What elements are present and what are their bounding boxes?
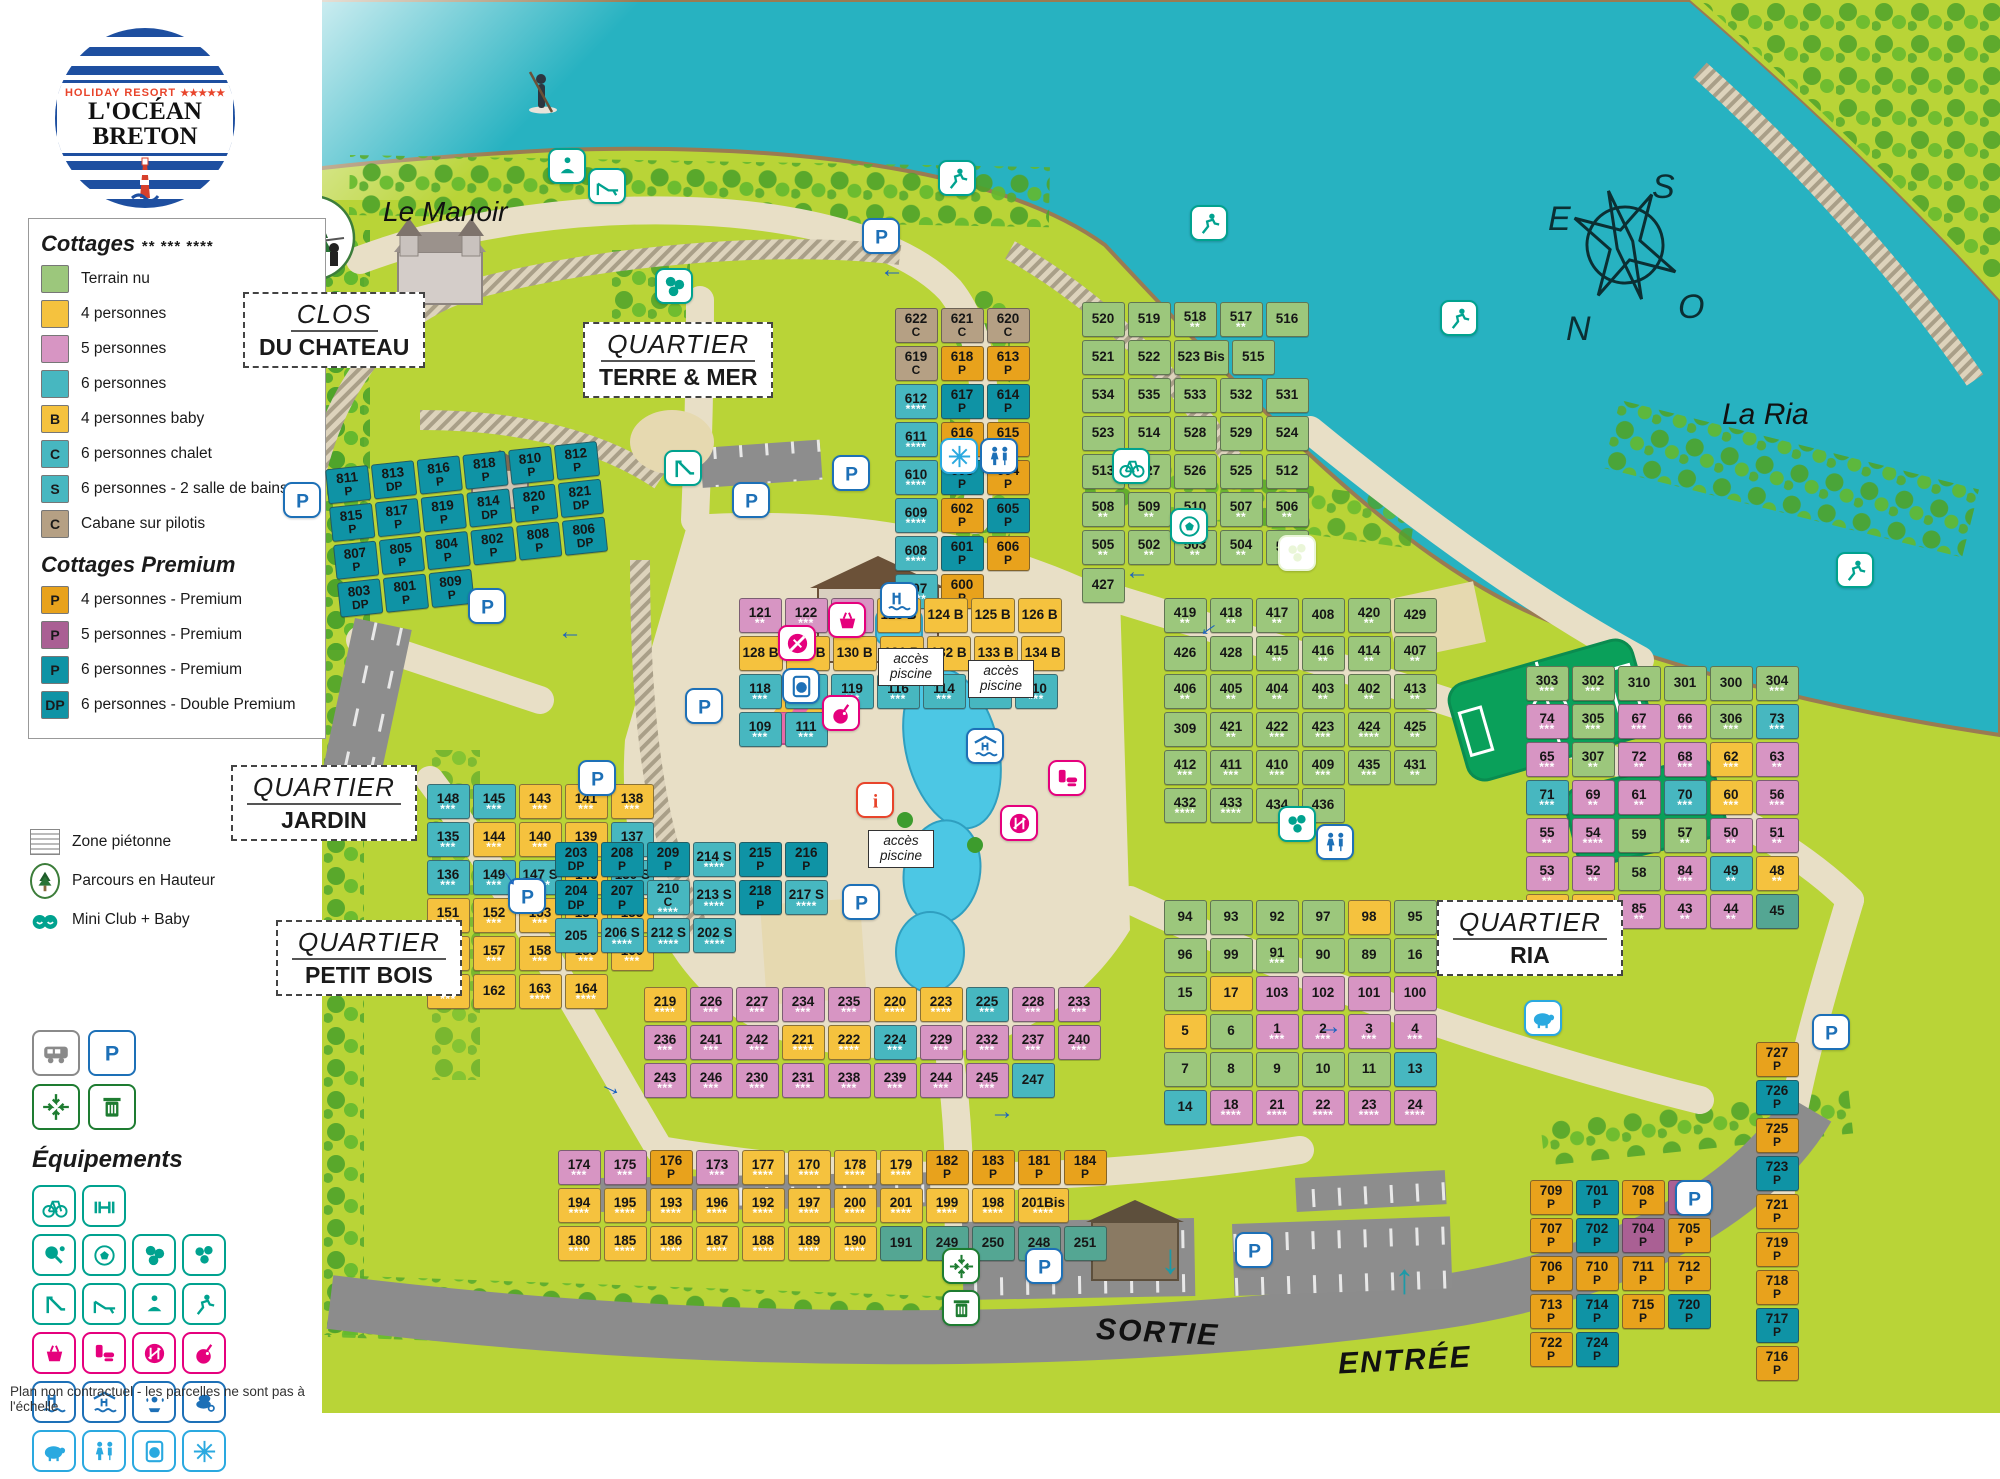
parcel-528: 528	[1174, 416, 1217, 451]
parcel-176: 176P	[650, 1150, 693, 1185]
parcel-529: 529	[1220, 416, 1263, 451]
parcel-130: 130 B	[833, 636, 877, 671]
lighthouse-icon	[130, 154, 160, 200]
parcel-240: 240***	[1058, 1025, 1101, 1060]
parcel-128: 128 B	[739, 636, 783, 671]
parcel-618: 618P	[941, 346, 984, 381]
parcel-304: 304***	[1756, 666, 1799, 701]
parcel-125: 125 B	[971, 598, 1015, 633]
parcel-518: 518**	[1174, 302, 1217, 337]
parcel-718: 718P	[1756, 1270, 1799, 1305]
parcel-17: 17	[1210, 976, 1253, 1011]
parcel-512: 512	[1266, 454, 1309, 489]
parcel-601: 601P	[941, 536, 984, 571]
parcel-805: 805P	[378, 535, 424, 574]
legend-item: Terrain nu	[41, 265, 313, 293]
parcel-611: 611****	[895, 422, 938, 457]
svg-text:P: P	[855, 893, 868, 914]
balls-icon	[655, 268, 693, 304]
bike-icon	[1112, 448, 1150, 484]
parcel-715: 715P	[1622, 1294, 1665, 1329]
parcel-819: 819P	[420, 493, 466, 532]
entree-label: ENTRÉE	[1337, 1341, 1472, 1382]
parcel-170: 170****	[788, 1150, 831, 1185]
parcel-54: 54****	[1572, 818, 1615, 853]
parcel-421: 421**	[1210, 712, 1253, 747]
parcel-517: 517**	[1220, 302, 1263, 337]
parcel-8: 8	[1210, 1052, 1253, 1087]
direction-arrow: ←	[1125, 560, 1149, 584]
parcels-ria-700-est: 727P726P725P723P721P719P718P717P716P	[1754, 1040, 1806, 1382]
parcel-724: 724P	[1576, 1332, 1619, 1367]
parcel-94: 94	[1164, 900, 1207, 935]
parcel-66: 66***	[1664, 704, 1707, 739]
parcel-233: 233***	[1058, 987, 1101, 1022]
parcel-435: 435***	[1348, 750, 1391, 785]
quartier-petit-bois-line1: QUARTIER	[292, 929, 446, 960]
legend-item: B4 personnes baby	[41, 405, 313, 433]
legend-swatch: P	[41, 586, 69, 614]
parcel-210: 210C****	[647, 880, 690, 916]
parcel-701: 701P	[1576, 1180, 1619, 1215]
parking-icon: P	[578, 760, 616, 796]
parcel-244: 244***	[920, 1063, 963, 1098]
parcel-803: 803DP	[336, 578, 382, 617]
parcel-183: 183P	[972, 1150, 1015, 1185]
parcel-148: 148***	[427, 784, 470, 819]
assembly-point-icon	[942, 1248, 980, 1284]
parcel-523: 523	[1082, 416, 1125, 451]
parcel-53: 53**	[1526, 856, 1569, 891]
equip-row	[32, 1185, 302, 1227]
parcel-201Bis: 201Bis****	[1018, 1188, 1070, 1223]
parcel-811: 811P	[325, 465, 371, 504]
equip-row	[32, 1234, 302, 1276]
stripes-icon	[30, 827, 60, 857]
parcel-420: 420**	[1348, 598, 1391, 633]
runner-icon	[1836, 552, 1874, 588]
parcel-726: 726P	[1756, 1080, 1799, 1115]
parcel-307: 307**	[1572, 742, 1615, 777]
parcel-310: 310	[1618, 666, 1661, 701]
legend-swatch	[41, 300, 69, 328]
parcel-705: 705P	[1668, 1218, 1711, 1253]
parcel-719: 719P	[1756, 1232, 1799, 1267]
le-manoir-label: Le Manoir	[383, 196, 508, 228]
legend-item: DP6 personnes - Double Premium	[41, 691, 313, 719]
svg-text:P: P	[698, 697, 711, 718]
wc-icon	[1316, 824, 1354, 860]
parcel-821: 821DP	[557, 478, 603, 517]
legend-item-label: 6 personnes chalet	[81, 445, 212, 463]
quartier-jardin-line1: QUARTIER	[247, 774, 401, 805]
snowflake-icon	[182, 1430, 226, 1472]
parcel-61: 61**	[1618, 780, 1661, 815]
parcel-702: 702P	[1576, 1218, 1619, 1253]
parcel-522: 522	[1128, 340, 1171, 375]
parcel-58: 58	[1618, 856, 1661, 891]
parcel-207: 207P	[601, 880, 644, 916]
parcel-508: 508**	[1082, 492, 1125, 527]
quartier-terre-mer: QUARTIER TERRE & MER	[583, 322, 773, 398]
parcel-426: 426	[1164, 636, 1207, 671]
acces-piscine-label-2: accès piscine	[968, 660, 1034, 698]
parcel-433: 433****	[1210, 788, 1253, 823]
parcel-243: 243***	[644, 1063, 687, 1098]
bike-icon	[32, 1185, 76, 1227]
parcel-70: 70***	[1664, 780, 1707, 815]
logo-name-line2: BRETON	[65, 124, 225, 149]
parcel-52: 52**	[1572, 856, 1615, 891]
parcel-814: 814DP	[466, 488, 512, 527]
parcel-423: 423***	[1302, 712, 1345, 747]
parcel-514: 514	[1128, 416, 1171, 451]
parcel-813: 813DP	[370, 460, 416, 499]
parcel-516: 516	[1266, 302, 1309, 337]
compass-e: E	[1548, 200, 1571, 239]
parcel-608: 608****	[895, 536, 938, 571]
restaurant-icon	[1000, 805, 1038, 841]
parcel-186: 186****	[650, 1226, 693, 1261]
parcel-138: 138***	[611, 784, 654, 819]
parcel-222: 222****	[828, 1025, 871, 1060]
legend-item: P5 personnes - Premium	[41, 621, 313, 649]
parcel-407: 407**	[1394, 636, 1437, 671]
parcel-6: 6	[1210, 1014, 1253, 1049]
legend-item: S6 personnes - 2 salle de bains	[41, 475, 313, 503]
trash-icon	[88, 1084, 136, 1130]
parcel-190: 190****	[834, 1226, 877, 1261]
svg-text:P: P	[105, 1042, 119, 1066]
parcel-509: 509**	[1128, 492, 1171, 527]
parcel-216: 216P	[785, 842, 828, 877]
legend-services-icons: P	[32, 1030, 136, 1130]
parcel-175: 175***	[604, 1150, 647, 1185]
parcel-402: 402**	[1348, 674, 1391, 709]
parcel-230: 230***	[736, 1063, 779, 1098]
parking-icon: P	[1812, 1014, 1850, 1050]
parcel-181: 181P	[1018, 1150, 1061, 1185]
quartier-jardin-line2: JARDIN	[247, 809, 401, 832]
wc-icon	[82, 1430, 126, 1472]
parcel-706: 706P	[1530, 1256, 1573, 1291]
parcel-24: 24****	[1394, 1090, 1437, 1125]
parcel-219: 219****	[644, 987, 687, 1022]
parcel-63: 63**	[1756, 742, 1799, 777]
parking-icon: P	[88, 1030, 136, 1076]
parcel-804: 804P	[424, 530, 470, 569]
parcel-414: 414**	[1348, 636, 1391, 671]
parcel-612: 612****	[895, 384, 938, 419]
parcel-725: 725P	[1756, 1118, 1799, 1153]
sortie-arrow: ↓	[1160, 1238, 1181, 1280]
parcel-208: 208P	[601, 842, 644, 877]
legend-item-label: 4 personnes baby	[81, 410, 204, 428]
parcel-403: 403**	[1302, 674, 1345, 709]
direction-arrow: ←	[558, 620, 582, 644]
parking-icon: P	[1235, 1232, 1273, 1268]
parcel-45: 45	[1756, 894, 1799, 929]
petanque-icon	[1278, 806, 1316, 842]
svg-text:P: P	[1248, 1241, 1261, 1262]
parcel-215: 215P	[739, 842, 782, 877]
parcel-89: 89	[1348, 938, 1391, 973]
parcel-43: 43**	[1664, 894, 1707, 929]
parcel-48: 48**	[1756, 856, 1799, 891]
parcel-515: 515	[1232, 340, 1275, 375]
parcel-309: 309	[1164, 712, 1207, 747]
petanque-icon	[182, 1234, 226, 1276]
parcel-74: 74***	[1526, 704, 1569, 739]
parcel-182: 182P	[926, 1150, 969, 1185]
faces-icon	[30, 905, 60, 935]
parcel-818: 818P	[462, 450, 508, 489]
parcel-302: 302***	[1572, 666, 1615, 701]
svg-text:P: P	[845, 464, 858, 485]
parcel-21: 21****	[1256, 1090, 1299, 1125]
legend-swatch: DP	[41, 691, 69, 719]
legend-swatch: P	[41, 621, 69, 649]
parcel-44: 44**	[1710, 894, 1753, 929]
parcel-217: 217 S****	[785, 880, 828, 916]
parcel-621: 621C	[941, 308, 984, 343]
parcel-103: 103	[1256, 976, 1299, 1011]
compass-o: O	[1678, 288, 1704, 327]
parcel-50: 50**	[1710, 818, 1753, 853]
parcel-429: 429	[1394, 598, 1437, 633]
parking-icon: P	[732, 482, 770, 518]
parcel-622: 622C	[895, 308, 938, 343]
pingpong-icon	[32, 1234, 76, 1276]
fastfood-icon	[82, 1332, 126, 1374]
parcel-205: 205	[555, 918, 598, 953]
parcel-93: 93	[1210, 900, 1253, 935]
parcel-817: 817P	[374, 498, 420, 537]
parcel-532: 532	[1220, 378, 1263, 413]
compass-s: S	[1652, 168, 1675, 207]
parcel-519: 519	[1128, 302, 1171, 337]
parcel-73: 73***	[1756, 704, 1799, 739]
equipements-icon-grid	[32, 1185, 302, 1479]
parcel-507: 507**	[1220, 492, 1263, 527]
parcel-69: 69**	[1572, 780, 1615, 815]
parcels-jardin-premium: 203DP208P209P214 S****215P216P204DP207P2…	[553, 840, 871, 955]
farm-icon	[32, 1430, 76, 1472]
parcel-231: 231***	[782, 1063, 825, 1098]
parcel-4: 4***	[1394, 1014, 1437, 1049]
cocktail-icon	[822, 695, 860, 731]
parcel-188: 188****	[742, 1226, 785, 1261]
parcel-225: 225***	[966, 987, 1009, 1022]
parcel-95: 95	[1394, 900, 1437, 935]
parcel-177: 177****	[742, 1150, 785, 1185]
parcel-816: 816P	[416, 455, 462, 494]
quartier-clos-du-chateau: CLOS DU CHATEAU	[243, 292, 425, 368]
parcel-195: 195****	[604, 1188, 647, 1223]
parcel-723: 723P	[1756, 1156, 1799, 1191]
legend-premium-items: P4 personnes - PremiumP5 personnes - Pre…	[41, 586, 313, 719]
parcel-221: 221****	[782, 1025, 825, 1060]
parcel-23: 23****	[1348, 1090, 1391, 1125]
parcel-716: 716P	[1756, 1346, 1799, 1381]
parcel-708: 708P	[1622, 1180, 1665, 1215]
resort-logo: HOLIDAY RESORT ★★★★★ L'OCÉAN BRETON	[55, 28, 235, 208]
parcel-525: 525	[1220, 454, 1263, 489]
parcel-613: 613P	[987, 346, 1030, 381]
parcel-227: 227***	[736, 987, 779, 1022]
parcel-815: 815P	[328, 502, 374, 541]
parcel-520: 520	[1082, 302, 1125, 337]
legend-extra-label: Mini Club + Baby	[72, 911, 190, 929]
parcel-212: 212 S****	[647, 918, 690, 953]
parcel-807: 807P	[332, 540, 378, 579]
parcels-ria-centre: 949392979895969991***9089161517103102101…	[1162, 898, 1462, 1126]
svg-text:P: P	[875, 227, 888, 248]
parcel-812: 812P	[553, 440, 599, 479]
parcel-15: 15	[1164, 976, 1207, 1011]
parcel-710: 710P	[1576, 1256, 1619, 1291]
parcel-16: 16	[1394, 938, 1437, 973]
parcel-303: 303***	[1526, 666, 1569, 701]
parcel-191: 191	[880, 1226, 923, 1261]
parcel-56: 56***	[1756, 780, 1799, 815]
parcel-193: 193****	[650, 1188, 693, 1223]
legend-item: CCabane sur pilotis	[41, 510, 313, 538]
legend-item-label: Terrain nu	[81, 270, 150, 288]
quartier-terre-mer-line2: TERRE & MER	[599, 366, 757, 389]
parcel-412: 412***	[1164, 750, 1207, 785]
acces-piscine-label-3: accès piscine	[868, 830, 934, 868]
parcel-506: 506**	[1266, 492, 1309, 527]
camper-icon	[32, 1030, 80, 1076]
gather-icon	[32, 1084, 80, 1130]
parcel-226: 226***	[690, 987, 733, 1022]
parking-icon: P	[862, 218, 900, 254]
runner-icon	[938, 160, 976, 196]
parcel-202: 202 S****	[693, 918, 736, 953]
parcel-5: 5	[1164, 1014, 1207, 1049]
parcel-189: 189****	[788, 1226, 831, 1261]
parcel-504: 504**	[1220, 530, 1263, 565]
la-ria-label: La Ria	[1722, 398, 1809, 432]
parcel-62: 62***	[1710, 742, 1753, 777]
parcel-711: 711P	[1622, 1256, 1665, 1291]
entree-arrow: ↑	[1394, 1258, 1415, 1300]
legend-item: P4 personnes - Premium	[41, 586, 313, 614]
parcel-524: 524	[1266, 416, 1309, 451]
tree-icon	[30, 866, 60, 896]
quartier-ria-line2: RIA	[1453, 944, 1607, 967]
parking-icon: P	[832, 455, 870, 491]
parcel-820: 820P	[511, 483, 557, 522]
legend-cottages-title: Cottages ** *** ****	[41, 231, 313, 257]
quartier-terre-mer-line1: QUARTIER	[601, 331, 755, 362]
parcel-164: 164****	[565, 974, 608, 1009]
parcel-124: 124 B	[924, 598, 968, 633]
parcel-92: 92	[1256, 900, 1299, 935]
svg-text:P: P	[296, 491, 309, 512]
parcel-196: 196****	[696, 1188, 739, 1223]
parcel-163: 163****	[519, 974, 562, 1009]
parcel-224: 224***	[874, 1025, 917, 1060]
parcel-614: 614P	[987, 384, 1030, 419]
parcel-720: 720P	[1668, 1294, 1711, 1329]
parcel-428: 428	[1210, 636, 1253, 671]
parcel-145: 145***	[473, 784, 516, 819]
legend-cottages-stars: ** *** ****	[141, 238, 213, 255]
parcel-68: 68***	[1664, 742, 1707, 777]
resort-map: HOLIDAY RESORT ★★★★★ L'OCÉAN BRETON Cott…	[0, 0, 2000, 1413]
parcels-ria-700-ouest: 709P701P708P703P707P702P704P705P706P710P…	[1528, 1178, 1752, 1368]
parcel-213: 213 S****	[693, 880, 736, 916]
parcel-301: 301	[1664, 666, 1707, 701]
parcel-220: 220****	[874, 987, 917, 1022]
parcel-96: 96	[1164, 938, 1207, 973]
svg-text:P: P	[1688, 1189, 1701, 1210]
parcel-14: 14	[1164, 1090, 1207, 1125]
parcel-413: 413**	[1394, 674, 1437, 709]
quartier-petit-bois: QUARTIER PETIT BOIS	[276, 920, 462, 996]
parcel-533: 533	[1174, 378, 1217, 413]
parking-icon: P	[1025, 1248, 1063, 1284]
wc-icon	[980, 438, 1018, 474]
parcel-432: 432****	[1164, 788, 1207, 823]
parcel-704: 704P	[1622, 1218, 1665, 1253]
dumbbell-icon	[82, 1185, 126, 1227]
svg-text:P: P	[745, 491, 758, 512]
quartier-ria: QUARTIER RIA	[1437, 900, 1623, 976]
svg-text:P: P	[521, 887, 534, 908]
parcel-7: 7	[1164, 1052, 1207, 1087]
legend-item-label: Cabane sur pilotis	[81, 515, 205, 533]
parcel-214: 214 S****	[693, 842, 736, 877]
parcel-229: 229***	[920, 1025, 963, 1060]
snowflake-icon	[940, 438, 978, 474]
yoga-icon	[548, 148, 586, 184]
parking-icon: P	[468, 588, 506, 624]
pool-access-icon	[880, 582, 918, 618]
parcel-721: 721P	[1756, 1194, 1799, 1229]
parcel-606: 606P	[987, 536, 1030, 571]
parcel-707: 707P	[1530, 1218, 1573, 1253]
parcel-408: 408	[1302, 598, 1345, 633]
parcel-3: 3***	[1348, 1014, 1391, 1049]
basket-icon	[32, 1332, 76, 1374]
legend-item-label: 6 personnes - Premium	[81, 661, 242, 679]
parcel-239: 239***	[874, 1063, 917, 1098]
parcel-223: 223****	[920, 987, 963, 1022]
equip-row	[32, 1430, 302, 1472]
parcels-petit-bois: 174***175***176P173***177****170****178*…	[556, 1148, 1116, 1262]
parcel-185: 185****	[604, 1226, 647, 1261]
parcel-204: 204DP	[555, 880, 598, 916]
parcel-234: 234***	[782, 987, 825, 1022]
parcel-300: 300	[1710, 666, 1753, 701]
parcel-713: 713P	[1530, 1294, 1573, 1329]
parcel-610: 610****	[895, 460, 938, 495]
parcel-180: 180****	[558, 1226, 601, 1261]
parcel-431: 431**	[1394, 750, 1437, 785]
quartier-ria-line1: QUARTIER	[1453, 909, 1607, 940]
sortie-label: SORTIE	[1095, 1313, 1220, 1353]
parcel-135: 135***	[427, 822, 470, 857]
parking-icon: P	[1675, 1180, 1713, 1216]
parcel-84: 84***	[1664, 856, 1707, 891]
parcel-85: 85**	[1618, 894, 1661, 929]
legend-panel: HOLIDAY RESORT ★★★★★ L'OCÉAN BRETON Cott…	[0, 0, 322, 1413]
parcel-1: 1***	[1256, 1014, 1299, 1049]
parcel-505: 505**	[1082, 530, 1125, 565]
